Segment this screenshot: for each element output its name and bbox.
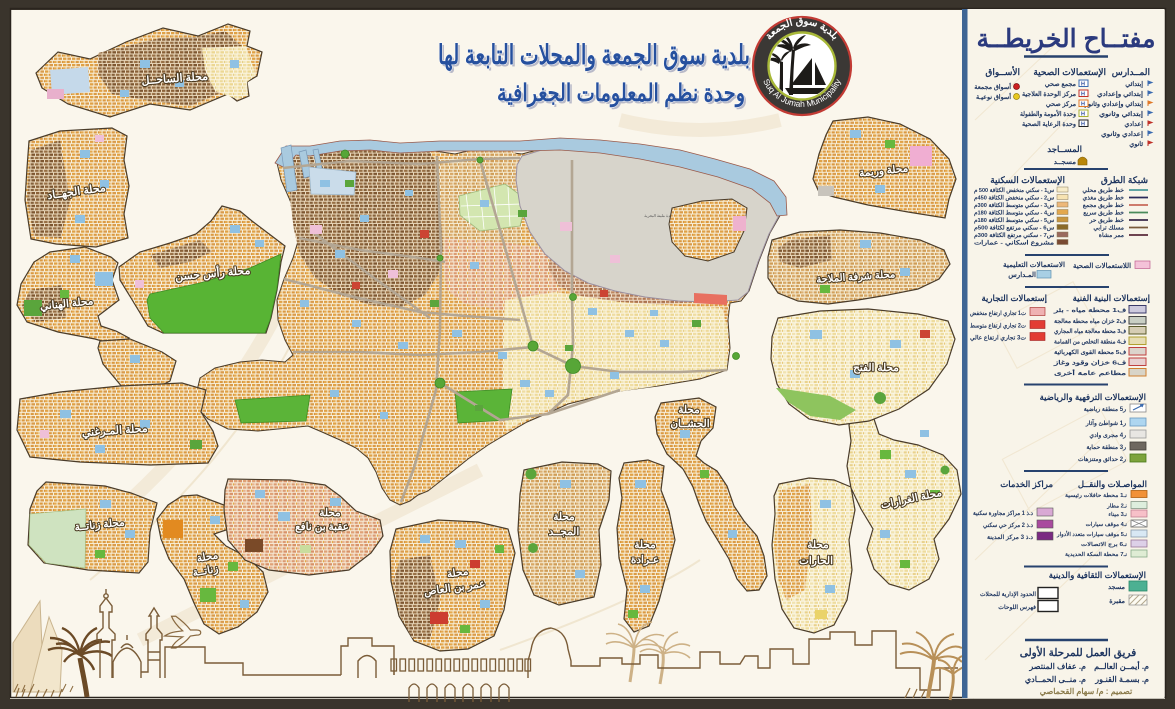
svg-text:ثانوي: ثانوي [1129,141,1143,148]
svg-text:مسجــد: مسجــد [1054,159,1077,166]
svg-text:اللاستعمالات الصحية: اللاستعمالات الصحية [1073,262,1131,270]
svg-text:الاستعمالات التعليمية: الاستعمالات التعليمية [1003,261,1065,269]
svg-text:الإستعمالات الثقافية والدينية: الإستعمالات الثقافية والدينية [1049,570,1146,581]
svg-text:خط طريق مغذي: خط طريق مغذي [1083,195,1125,202]
svg-text:س4 - سكني متوسط الكثافة 180م: س4 - سكني متوسط الكثافة 180م [974,210,1054,217]
svg-text:س1 - سكني منخفض الكثافة 500 م: س1 - سكني منخفض الكثافة 500 م [974,187,1054,194]
svg-text:محلة: محلة [634,539,656,551]
svg-text:خط طريق محلي: خط طريق محلي [1082,187,1124,194]
svg-text:الحدود الإدارية للمحلات: الحدود الإدارية للمحلات [980,591,1036,598]
svg-text:ر4 مجرى وادي: ر4 مجرى وادي [1089,432,1126,439]
svg-text:ف6 خزان وقود وغاز: ف6 خزان وقود وغاز [1053,360,1126,367]
svg-text:محلة: محلة [807,539,829,551]
svg-text:محلة: محلة [553,511,575,523]
svg-text:د.ذ 1 مراكز مجاورة سكنية: د.ذ 1 مراكز مجاورة سكنية [973,510,1033,517]
svg-text:ممر مشاة: ممر مشاة [1099,232,1124,239]
svg-text:م. منــى الحمــادي: م. منــى الحمــادي [1025,675,1086,685]
svg-text:مسجد: مسجد [1108,584,1125,591]
svg-text:مراكز الخدمات: مراكز الخدمات [1000,479,1053,490]
svg-text:ف3 محطة معالجة مياه المجاري: ف3 محطة معالجة مياه المجاري [1054,328,1126,335]
svg-text:س6 - سكني مرتفع لكثافة 500م: س6 - سكني مرتفع لكثافة 500م [974,225,1054,232]
svg-text:محلة الفتح: محلة الفتح [853,362,899,374]
svg-text:ف5 محطة القوى الكهربائية: ف5 محطة القوى الكهربائية [1054,349,1126,356]
svg-text:خط طريق سريع: خط طريق سريع [1083,210,1124,217]
svg-text:س7 - سكني مرتفع الكثافة 300م: س7 - سكني مرتفع الكثافة 300م [974,232,1054,239]
svg-text:المـدارس: المـدارس [1008,271,1036,279]
svg-text:مقبرة: مقبرة [1109,598,1125,605]
svg-text:عقبة بن نافع: عقبة بن نافع [295,521,349,533]
svg-text:مفتــاح الخريطــة: مفتــاح الخريطــة [977,25,1156,54]
svg-text:ف4 منطقة التخلص من القمامة: ف4 منطقة التخلص من القمامة [1054,339,1126,346]
svg-text:أسواق نوعيـة: أسواق نوعيـة [976,92,1011,101]
svg-text:المســاجد: المســاجد [1047,144,1082,154]
svg-text:م. بسمـة القنـور: م. بسمـة القنـور [1094,675,1149,685]
svg-text:ف2 خزان مياه محطة معالجة: ف2 خزان مياه محطة معالجة [1054,318,1126,325]
svg-text:نـ4 موقف سيارات: نـ4 موقف سيارات [1086,521,1128,528]
svg-text:محلة: محلة [678,404,700,416]
svg-text:شبكة الطرق: شبكة الطرق [1101,175,1148,186]
svg-text:عـرادة: عـرادة [631,554,659,566]
svg-text:H: H [1081,122,1085,128]
svg-text:المجــد: المجــد [549,526,580,538]
svg-text:مجمع صحي: مجمع صحي [1045,81,1076,88]
svg-text:الإستعمالات الصحية: الإستعمالات الصحية [1033,67,1106,78]
svg-text:المواصـلات والنقــل: المواصـلات والنقــل [1078,479,1147,490]
svg-text:تصميم : م/ سهام القحماصي: تصميم : م/ سهام القحماصي [1040,687,1133,697]
svg-text:ر5 منطقة رياضية: ر5 منطقة رياضية [1084,406,1126,413]
svg-text:إعدادي: إعدادي [1124,121,1143,128]
svg-text:الحشــان: الحشــان [670,418,709,430]
svg-text:م. عفاف المنتصر: م. عفاف المنتصر [1028,662,1086,672]
svg-text:محلة: محلة [319,507,341,519]
svg-text:ر3 منطقة حماية: ر3 منطقة حماية [1086,444,1126,451]
svg-text:H: H [1081,112,1085,118]
svg-text:نـ2 مطار: نـ2 مطار [1106,503,1127,510]
svg-text:إستعمالات التجارية: إستعمالات التجارية [982,293,1048,304]
svg-text:المــدارس: المــدارس [1112,67,1150,78]
svg-text:مركز صحي: مركز صحي [1046,101,1076,108]
svg-text:H: H [1081,92,1085,98]
svg-text:إبتدائي وثانوي: إبتدائي وثانوي [1099,111,1143,118]
svg-text:فريق العمل للمرحلة الأولى: فريق العمل للمرحلة الأولى [1020,645,1137,659]
svg-text:نـ3 ميناء: نـ3 ميناء [1108,511,1127,518]
svg-text:إبتدائي وإعدادي: إبتدائي وإعدادي [1097,91,1143,98]
svg-text:نـ7 محطة السكة الحديدية: نـ7 محطة السكة الحديدية [1065,551,1127,558]
svg-text:خط طريق مجمع: خط طريق مجمع [1083,202,1125,209]
svg-text:أسواق مجمعة: أسواق مجمعة [974,82,1011,91]
svg-text:وحدة الرعاية الصحية: وحدة الرعاية الصحية [1022,121,1076,128]
svg-text:مسلك ترابي: مسلك ترابي [1093,225,1124,232]
svg-text:ر2 حدائق ومتنزهات: ر2 حدائق ومتنزهات [1078,456,1126,463]
svg-text:نـ1 محطة حافلات رئيسية: نـ1 محطة حافلات رئيسية [1065,492,1127,499]
svg-text:فهرس اللوحات: فهرس اللوحات [998,604,1036,611]
svg-text:س5 - سكني متوسط الكثافة 180م: س5 - سكني متوسط الكثافة 180م [974,217,1054,224]
svg-text:خط طريق حر: خط طريق حر [1088,217,1124,224]
svg-text:إبتدائي: إبتدائي [1125,81,1143,88]
svg-text:نـ6 برج الاتصالات: نـ6 برج الاتصالات [1081,541,1128,548]
svg-text:مشروع اسكاني - عمارات: مشروع اسكاني - عمارات [974,240,1054,247]
svg-text:وحدة نظم المعلومات الجغرافية: وحدة نظم المعلومات الجغرافية [497,80,745,108]
svg-text:ت2 تجاري ارتفاع متوسط: ت2 تجاري ارتفاع متوسط [970,323,1026,330]
svg-text:ر1 شواطئ وآثار: ر1 شواطئ وآثار [1085,419,1126,427]
svg-text:بلدية سوق الجمعة والمحلات التا: بلدية سوق الجمعة والمحلات التابعة لها [438,40,750,72]
svg-text:د.ذ 3 مركز المدينة: د.ذ 3 مركز المدينة [987,534,1033,541]
svg-text:H: H [1081,102,1085,108]
svg-text:وحدة الأمومة والطفولة: وحدة الأمومة والطفولة [1020,109,1076,118]
svg-text:مركز الوحدة العلاجية: مركز الوحدة العلاجية [1022,91,1076,98]
svg-text:إستعمالات البنية الفنية: إستعمالات البنية الفنية [1073,293,1151,304]
svg-text:الحارات: الحارات [799,555,833,567]
svg-text:إبتدائي وإعدادي وثانوي: إبتدائي وإعدادي وثانوي [1083,101,1143,108]
svg-text:د.ذ 2 مركز حي سكني: د.ذ 2 مركز حي سكني [983,522,1033,529]
svg-text:الإستعمالات الترفهية والرياضية: الإستعمالات الترفهية والرياضية [1040,392,1146,403]
svg-text:س2 - سكني منخفض الكثافة 450م: س2 - سكني منخفض الكثافة 450م [974,195,1054,202]
svg-text:ت3 تجاري ارتفاع عالي: ت3 تجاري ارتفاع عالي [970,335,1026,342]
svg-text:الإستعمالات السكنية: الإستعمالات السكنية [990,175,1065,186]
svg-text:س3 - سكني متوسط الكثافة 300م: س3 - سكني متوسط الكثافة 300م [974,202,1054,209]
svg-text:إعدادي وثانوي: إعدادي وثانوي [1101,131,1143,138]
svg-text:ت1 تجاري ارتفاع منخفض: ت1 تجاري ارتفاع منخفض [970,310,1026,317]
svg-text:ف1 محطة مياه - بئر: ف1 محطة مياه - بئر [1053,307,1126,314]
svg-text:H: H [1081,82,1085,88]
svg-text:الأســواق: الأســواق [985,66,1020,78]
